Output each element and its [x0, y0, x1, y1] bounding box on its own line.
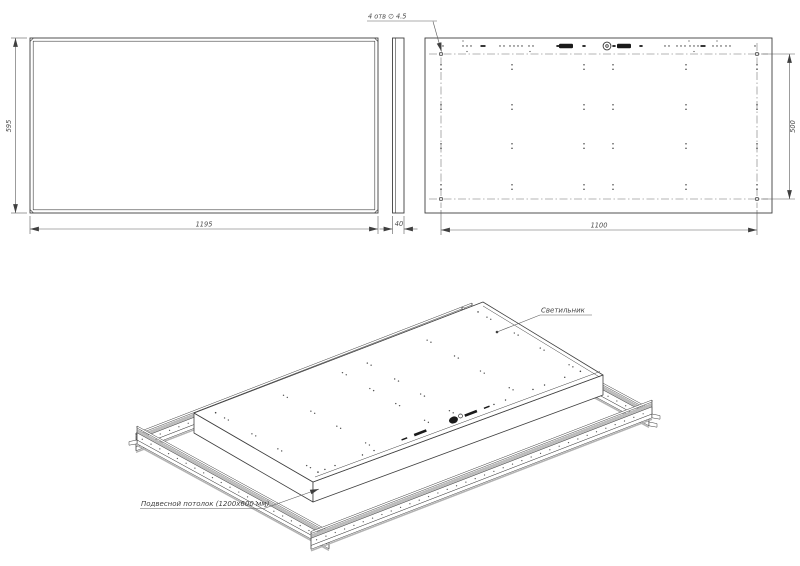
front-view-inner-frame — [33, 41, 375, 210]
front-view-outer-frame — [30, 38, 378, 213]
back-view-frame — [425, 38, 772, 213]
holes-annotation: 4 отв ∅ 4.5 — [368, 13, 406, 21]
dim-side-depth: 40 — [395, 220, 403, 228]
drawing-canvas: 595 1195 40 500 1100 4 отв ∅ 4.5 — [0, 0, 800, 566]
back-view — [425, 38, 772, 213]
fixture-label: Светильник — [541, 307, 586, 315]
dim-front-width: 1195 — [196, 221, 213, 229]
front-view — [30, 38, 378, 213]
back-view-centerlines — [429, 43, 768, 208]
front-view-corner-bevels — [30, 38, 378, 213]
iso-view: Светильник Подвесной потолок (1200x600 м… — [129, 302, 660, 551]
back-view-hole-pattern — [439, 40, 758, 200]
dim-back-height: 500 — [789, 120, 797, 133]
side-view — [393, 38, 405, 213]
front-view-dimensions — [11, 38, 378, 234]
holes-leader-line — [433, 22, 442, 52]
ceiling-label: Подвесной потолок (1200x600 мм) — [141, 500, 270, 508]
back-view-dimensions — [367, 21, 795, 235]
side-view-profile — [393, 38, 405, 213]
dim-front-height: 595 — [5, 120, 13, 133]
dim-back-width: 1100 — [591, 222, 608, 230]
